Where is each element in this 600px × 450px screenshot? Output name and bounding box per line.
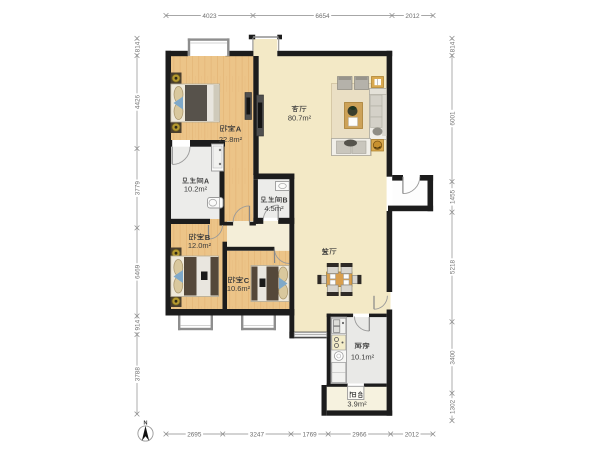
svg-text:4.5m²: 4.5m²	[264, 204, 284, 213]
svg-text:814: 814	[449, 41, 456, 52]
svg-text:6469: 6469	[134, 264, 141, 279]
svg-text:4426: 4426	[134, 94, 141, 109]
svg-text:3247: 3247	[250, 431, 265, 438]
svg-text:4023: 4023	[202, 13, 217, 20]
svg-text:12.0m²: 12.0m²	[188, 241, 212, 250]
svg-text:6654: 6654	[315, 13, 330, 20]
svg-text:N: N	[144, 421, 148, 427]
svg-text:3779: 3779	[134, 181, 141, 196]
svg-text:1455: 1455	[449, 189, 456, 204]
svg-text:2012: 2012	[405, 13, 420, 20]
svg-text:1302: 1302	[449, 399, 456, 414]
svg-text:3788: 3788	[134, 367, 141, 382]
svg-text:3400: 3400	[449, 350, 456, 365]
svg-text:3.9m²: 3.9m²	[347, 400, 367, 409]
svg-text:2695: 2695	[187, 431, 202, 438]
svg-text:1769: 1769	[302, 431, 317, 438]
svg-text:10.1m²: 10.1m²	[351, 353, 375, 362]
svg-text:2966: 2966	[352, 431, 367, 438]
svg-text:22.8m²: 22.8m²	[219, 135, 243, 144]
svg-text:2012: 2012	[405, 431, 420, 438]
svg-text:5218: 5218	[449, 259, 456, 274]
svg-text:10.6m²: 10.6m²	[227, 284, 251, 293]
svg-text:814: 814	[134, 41, 141, 52]
svg-text:10.2m²: 10.2m²	[184, 185, 208, 194]
svg-text:6001: 6001	[449, 111, 456, 126]
svg-text:A: A	[236, 124, 242, 133]
svg-text:80.7m²: 80.7m²	[288, 114, 312, 123]
svg-text:914: 914	[134, 319, 141, 330]
